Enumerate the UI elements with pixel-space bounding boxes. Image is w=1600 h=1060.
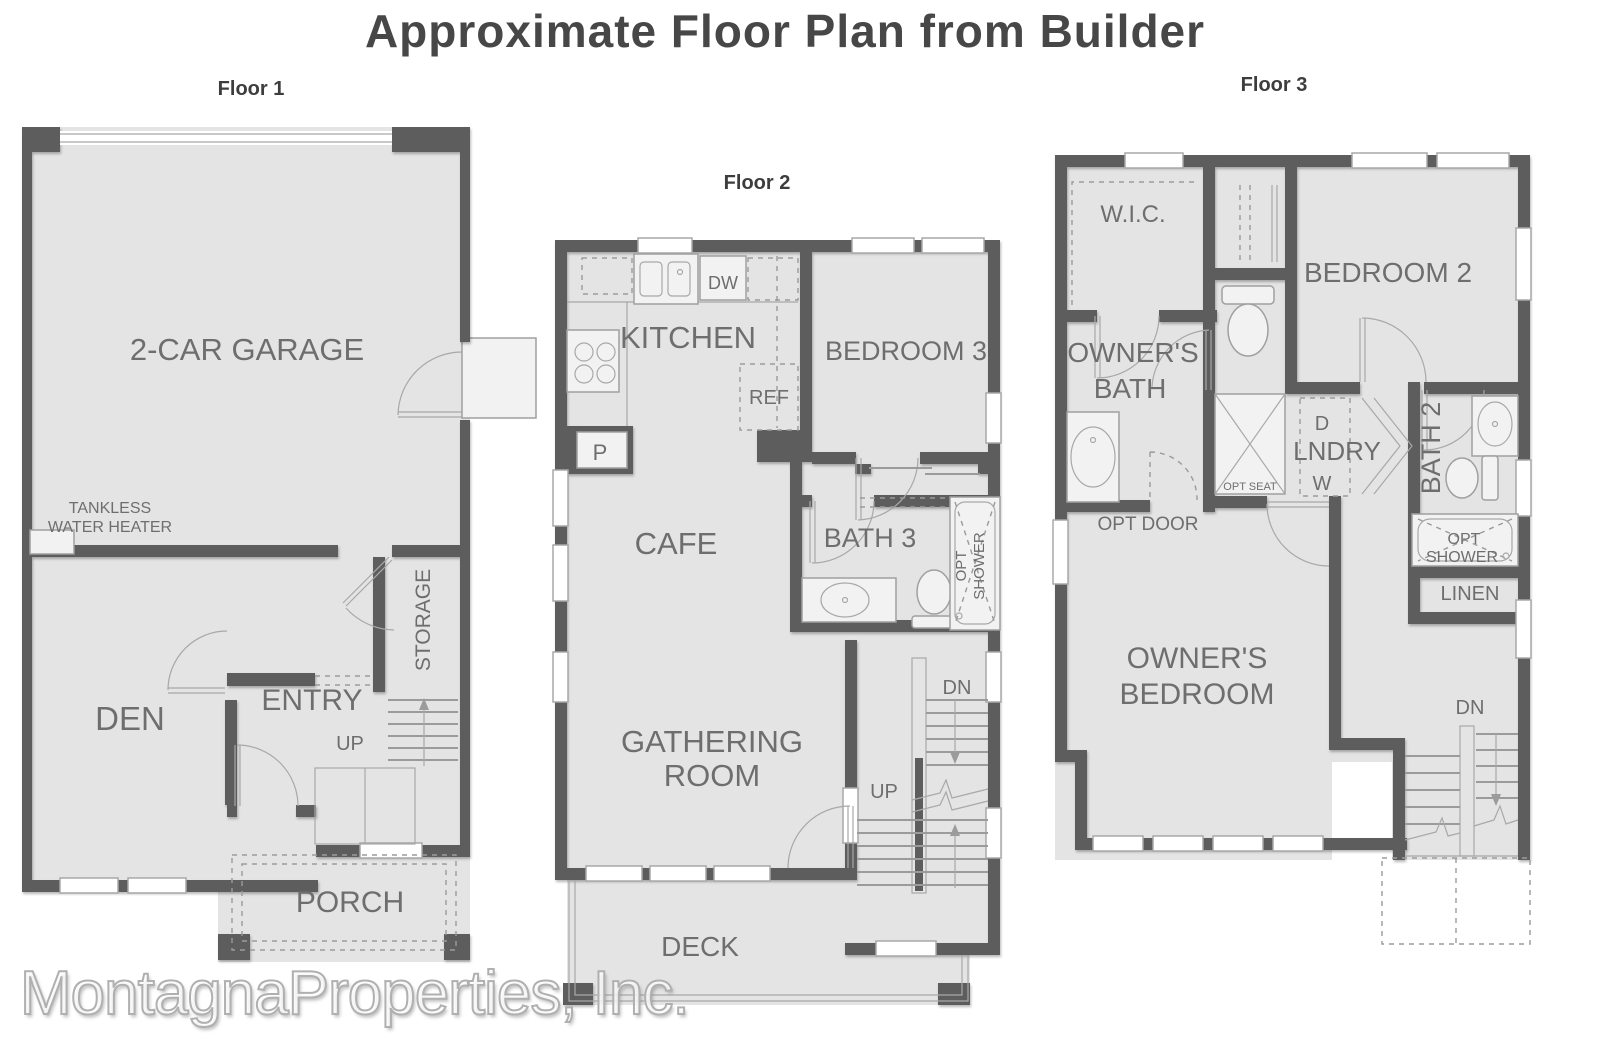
label-bedroom2: BEDROOM 2	[1304, 257, 1472, 288]
label-opt-shower2-1: OPT	[953, 551, 970, 582]
floor2-plan: KITCHEN DW REF P CAFE BEDROOM 3 BATH 3 O…	[553, 238, 1001, 1005]
label-dw: DW	[708, 273, 738, 293]
label-cafe: CAFE	[635, 526, 718, 561]
label-owners-bed-1: OWNER'S	[1127, 642, 1268, 675]
label-ref: REF	[749, 387, 789, 409]
owners-toilet	[1228, 304, 1268, 356]
label-entry: ENTRY	[261, 684, 362, 717]
bath3-vanity	[802, 578, 896, 622]
label-porch: PORCH	[296, 886, 404, 919]
label-dn-floor2: DN	[943, 677, 972, 699]
toilet-tank	[1222, 286, 1274, 304]
label-gathering-2: ROOM	[664, 758, 760, 793]
label-bath3: BATH 3	[824, 523, 917, 553]
floor-plan-page: Approximate Floor Plan from Builder Floo…	[0, 0, 1600, 1060]
label-bedroom3: BEDROOM 3	[825, 336, 987, 366]
label-garage: 2-CAR GARAGE	[130, 332, 364, 367]
label-tankless-1: TANKLESS	[69, 500, 151, 517]
label-owners-bath-1: OWNER'S	[1067, 337, 1198, 368]
owners-bath-vanity	[1067, 412, 1119, 502]
floor-plan-drawing: 2-CAR GARAGE TANKLESS WATER HEATER DEN E…	[0, 0, 1600, 1060]
label-gathering-1: GATHERING	[621, 724, 803, 759]
label-opt-shower3-2: SHOWER	[1426, 549, 1498, 566]
label-opt-door: OPT DOOR	[1098, 514, 1199, 535]
floor1-plan: 2-CAR GARAGE TANKLESS WATER HEATER DEN E…	[22, 127, 536, 962]
bath2-toilet	[1446, 458, 1478, 498]
label-dn-floor3: DN	[1456, 697, 1485, 719]
label-den: DEN	[95, 700, 165, 737]
label-laundry-d: D	[1315, 413, 1329, 435]
label-opt-shower3-1: OPT	[1448, 531, 1481, 548]
label-storage: STORAGE	[412, 569, 435, 671]
garage-side-landing	[462, 338, 536, 418]
garage-door	[60, 131, 392, 145]
label-linen: LINEN	[1441, 583, 1500, 605]
label-opt-seat: OPT SEAT	[1223, 481, 1277, 493]
label-lndry: LNDRY	[1293, 436, 1381, 466]
label-up-floor2: UP	[870, 781, 898, 803]
bath3-toilet	[917, 570, 951, 614]
label-up-floor1: UP	[336, 733, 364, 755]
label-owners-bed-2: BEDROOM	[1119, 678, 1274, 711]
label-tankless-2: WATER HEATER	[48, 519, 172, 536]
label-bath2: BATH 2	[1416, 402, 1446, 495]
floor3-plan: W.I.C. OWNER'S BATH BEDROOM 2 D LNDRY W …	[1053, 153, 1531, 944]
label-owners-bath-2: BATH	[1094, 373, 1167, 404]
label-laundry-w: W	[1313, 473, 1332, 495]
label-kitchen: KITCHEN	[620, 320, 756, 355]
label-opt-shower2-2: SHOWER	[971, 532, 988, 600]
cooktop	[567, 330, 619, 392]
watermark: MontagnaProperties, Inc.	[20, 958, 689, 1029]
label-pantry: P	[593, 440, 608, 465]
label-wic: W.I.C.	[1100, 201, 1165, 228]
